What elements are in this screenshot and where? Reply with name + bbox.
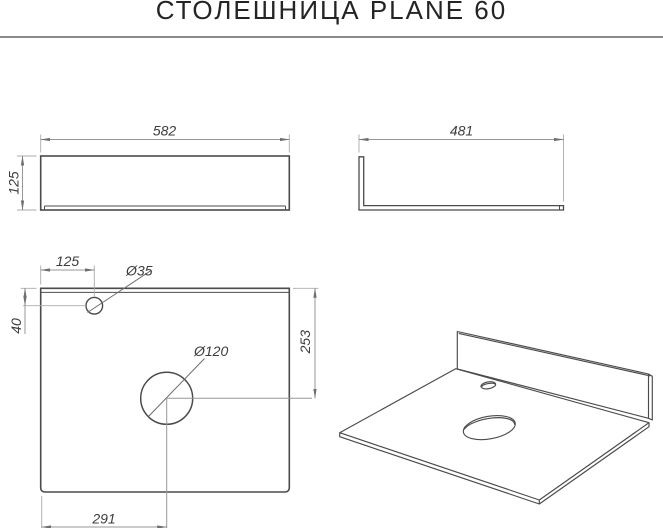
drain-hole-diameter-label: Ø120 — [193, 343, 228, 359]
dim-40-extension-lines — [21, 288, 87, 305]
dim-125h-label: 125 — [6, 171, 22, 195]
front-view-bottom-edge-line — [45, 206, 286, 210]
dim-481-label: 481 — [450, 123, 473, 139]
iso-drain-hole — [461, 412, 517, 443]
dim-291-label: 291 — [91, 511, 115, 527]
dim-40-label: 40 — [8, 318, 24, 334]
front-view: 582 125 — [6, 123, 290, 211]
drawing-svg: 582 125 481 Ø35 125 40 — [0, 0, 663, 528]
dim-481-extension-lines — [359, 135, 564, 202]
drawing-sheet: СТОЛЕШНИЦА PLANE 60 582 125 481 — [0, 0, 663, 528]
iso-view — [340, 332, 653, 505]
side-view: 481 — [359, 123, 564, 211]
iso-drain-hole-rim — [464, 418, 514, 430]
front-view-outline — [41, 156, 290, 210]
faucet-hole-diameter-label: Ø35 — [125, 263, 153, 279]
iso-countertop-thickness-edges — [340, 423, 649, 504]
dim-125p-label: 125 — [56, 253, 80, 269]
dim-253-label: 253 — [297, 330, 313, 355]
iso-countertop-top-face — [340, 369, 649, 500]
iso-backsplash-top-edge — [459, 333, 651, 376]
drain-hole-leader — [149, 359, 205, 417]
plan-view: Ø35 125 40 Ø120 253 291 — [8, 253, 319, 528]
iso-backsplash-front-face — [457, 332, 648, 419]
side-view-profile — [359, 157, 564, 210]
dim-582-label: 582 — [153, 123, 177, 139]
plan-view-outline — [41, 288, 290, 492]
